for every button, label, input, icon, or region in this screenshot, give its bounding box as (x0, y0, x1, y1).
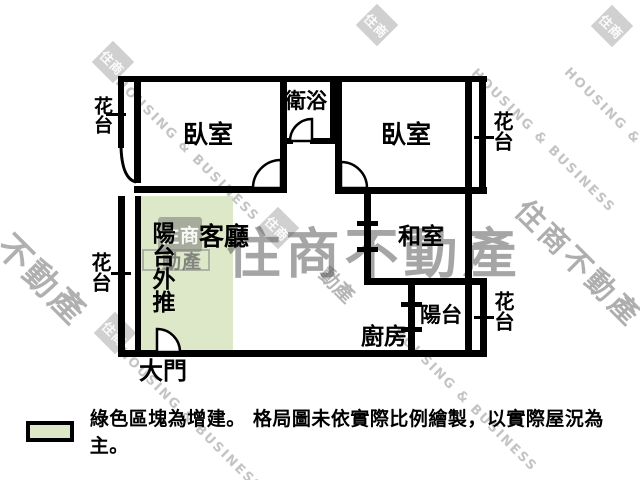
label-flower-bed-top-left: 花台 (92, 96, 111, 134)
label-kitchen: 廚房 (361, 325, 407, 349)
label-balcony-pushout: 陽台外推 (149, 221, 172, 313)
label-bedroom-left: 臥室 (183, 122, 233, 148)
label-living-room: 客廳 (199, 224, 249, 250)
legend: 綠色區塊為增建。 格局圖未依實際比例繪製，以實際屋況為主。 (26, 404, 640, 458)
label-bedroom-right: 臥室 (381, 122, 431, 148)
label-flower-bed-top-right: 花台 (492, 111, 512, 151)
label-balcony: 陽台 (420, 304, 462, 326)
label-tatami-room: 和室 (398, 225, 444, 249)
label-flower-bed-bottom-left: 花台 (90, 252, 110, 292)
label-main-door: 大門 (139, 359, 187, 384)
legend-note: 綠色區塊為增建。 格局圖未依實際比例繪製，以實際屋況為主。 (90, 404, 640, 458)
legend-green-swatch (26, 421, 74, 442)
floor-plan-image: HOUSING & BUSINESS HOUSING & BUSINESS HO… (0, 0, 640, 480)
label-bathroom: 衛浴 (285, 90, 327, 112)
label-flower-bed-bottom-right: 花台 (493, 291, 513, 331)
